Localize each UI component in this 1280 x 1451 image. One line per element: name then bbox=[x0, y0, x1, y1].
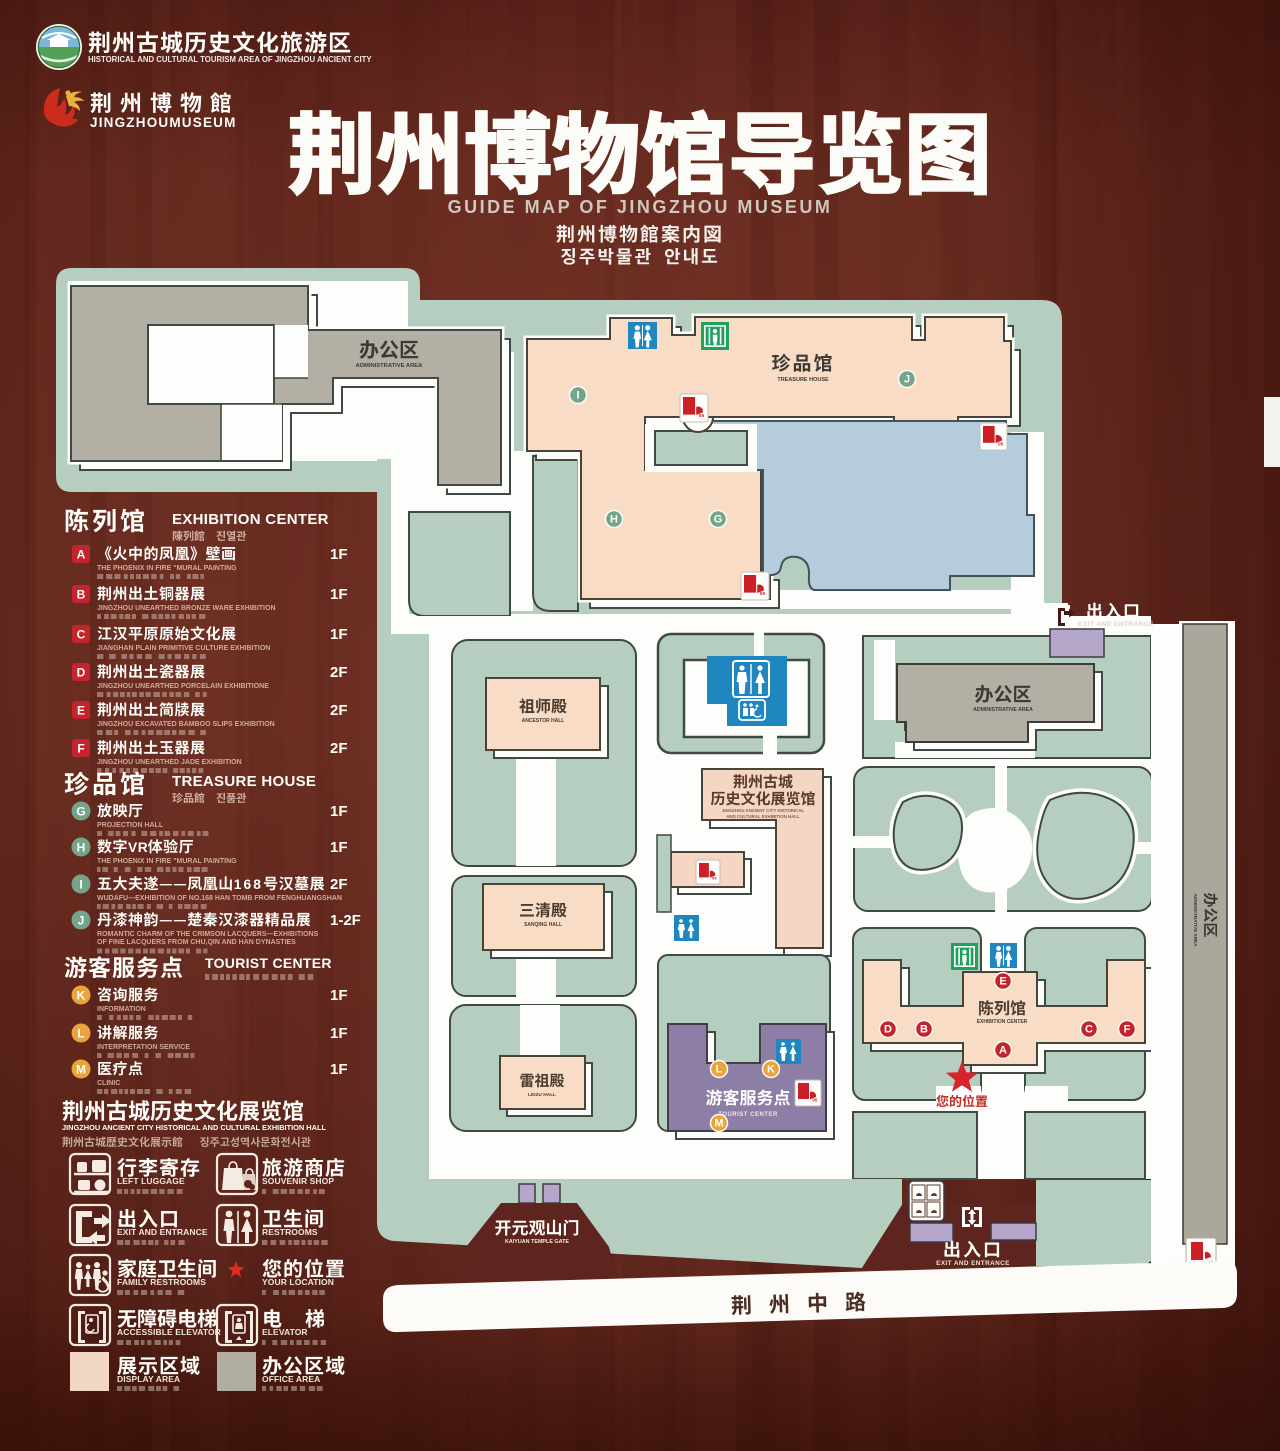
svg-text:C: C bbox=[77, 628, 86, 642]
svg-text:INFORMATION: INFORMATION bbox=[97, 1006, 146, 1013]
svg-text:TREASURE HOUSE: TREASURE HOUSE bbox=[172, 773, 316, 790]
svg-text:05: 05 bbox=[712, 876, 717, 881]
svg-text:EXIT AND ENTRANCE: EXIT AND ENTRANCE bbox=[1078, 621, 1154, 628]
svg-text:THE PHOENIX IN FIRE "MURAL PAI: THE PHOENIX IN FIRE "MURAL PAINTING bbox=[97, 565, 237, 572]
svg-text:1F: 1F bbox=[330, 1025, 348, 1042]
svg-text:JINGZHOU UNEARTHED BRONZE WARE: JINGZHOU UNEARTHED BRONZE WARE EXHIBITIO… bbox=[97, 605, 276, 612]
svg-text:YOUR LOCATION: YOUR LOCATION bbox=[262, 1277, 334, 1287]
svg-text:DISPLAY AREA: DISPLAY AREA bbox=[117, 1374, 180, 1384]
svg-text:JINGZHOU UNEARTHED PORCELAIN E: JINGZHOU UNEARTHED PORCELAIN EXHIBITIONE bbox=[97, 683, 269, 690]
svg-text:1F: 1F bbox=[330, 839, 348, 856]
svg-text:2F: 2F bbox=[330, 664, 348, 681]
svg-text:PROJECTION HALL: PROJECTION HALL bbox=[97, 822, 164, 829]
svg-text:F: F bbox=[77, 742, 84, 756]
svg-text:B: B bbox=[77, 588, 86, 602]
svg-text:1F: 1F bbox=[330, 546, 348, 563]
svg-text:M: M bbox=[714, 1118, 723, 1130]
svg-text:OF FINE LACQUERS FROM CHU,QIN: OF FINE LACQUERS FROM CHU,QIN AND HAN DY… bbox=[97, 939, 296, 946]
svg-text:AND CULTURAL EXHIBITION HALL: AND CULTURAL EXHIBITION HALL bbox=[726, 814, 800, 819]
svg-text:I: I bbox=[576, 390, 579, 402]
svg-text:1F: 1F bbox=[330, 586, 348, 603]
svg-text:EXHIBITION CENTER: EXHIBITION CENTER bbox=[172, 511, 329, 528]
svg-text:1F: 1F bbox=[330, 803, 348, 820]
svg-text:FAMILY RESTROOMS: FAMILY RESTROOMS bbox=[117, 1277, 206, 1287]
svg-text:H: H bbox=[77, 841, 86, 855]
svg-text:ADMINISTRATIVE AREA: ADMINISTRATIVE AREA bbox=[356, 363, 423, 369]
svg-text:INTERPRETATION SERVICE: INTERPRETATION SERVICE bbox=[97, 1044, 190, 1051]
svg-text:2F: 2F bbox=[330, 740, 348, 757]
svg-text:ANCESTOR HALL: ANCESTOR HALL bbox=[522, 718, 565, 724]
svg-text:D: D bbox=[884, 1024, 892, 1036]
svg-text:I: I bbox=[79, 878, 82, 892]
svg-text:A: A bbox=[999, 1045, 1007, 1057]
svg-text:1F: 1F bbox=[330, 987, 348, 1004]
svg-text:1-2F: 1-2F bbox=[330, 912, 361, 929]
svg-text:OFFICE AREA: OFFICE AREA bbox=[262, 1374, 320, 1384]
svg-text:J: J bbox=[78, 914, 85, 928]
svg-text:C: C bbox=[1085, 1024, 1093, 1036]
svg-text:JINGZHOUMUSEUM: JINGZHOUMUSEUM bbox=[90, 115, 237, 130]
svg-text:JINGZHOU ANCIENT CITY HISTORIC: JINGZHOU ANCIENT CITY HISTORICAL bbox=[722, 808, 805, 813]
svg-text:L: L bbox=[716, 1064, 723, 1076]
svg-text:05: 05 bbox=[812, 1097, 817, 1102]
svg-text:8: 8 bbox=[253, 877, 261, 892]
svg-text:ADMINISTRATIVE AREA: ADMINISTRATIVE AREA bbox=[1193, 894, 1198, 948]
svg-text:EXIT AND ENTRANCE: EXIT AND ENTRANCE bbox=[936, 1260, 1010, 1267]
svg-text:B: B bbox=[920, 1024, 928, 1036]
svg-text:CLINIC: CLINIC bbox=[97, 1080, 120, 1087]
svg-text:G: G bbox=[76, 805, 85, 819]
svg-text:EXHIBITION CENTER: EXHIBITION CENTER bbox=[977, 1019, 1028, 1025]
svg-text:G: G bbox=[714, 514, 723, 526]
svg-text:EXIT AND ENTRANCE: EXIT AND ENTRANCE bbox=[117, 1227, 208, 1237]
svg-text:WUDAFU—EXHIBITION OF NO.168 HA: WUDAFU—EXHIBITION OF NO.168 HAN TOMB FRO… bbox=[97, 895, 342, 902]
svg-text:D: D bbox=[77, 666, 86, 680]
svg-text:1F: 1F bbox=[330, 1061, 348, 1078]
svg-text:05: 05 bbox=[998, 441, 1004, 446]
svg-text:ADMINISTRATIVE AREA: ADMINISTRATIVE AREA bbox=[973, 707, 1033, 713]
svg-text:LEFT LUGGAGE: LEFT LUGGAGE bbox=[117, 1176, 185, 1186]
svg-text:1F: 1F bbox=[330, 626, 348, 643]
svg-text:SOUVENIR SHOP: SOUVENIR SHOP bbox=[262, 1176, 334, 1186]
svg-text:JIANGHAN PLAIN PRIMITIVE CULTU: JIANGHAN PLAIN PRIMITIVE CULTURE EXHIBIT… bbox=[97, 645, 270, 652]
svg-text:R: R bbox=[138, 840, 148, 855]
svg-text:E: E bbox=[999, 976, 1006, 988]
svg-text:TOURIST CENTER: TOURIST CENTER bbox=[718, 1112, 778, 1118]
svg-text:THE PHOENIX IN FIRE "MURAL PAI: THE PHOENIX IN FIRE "MURAL PAINTING bbox=[97, 858, 237, 865]
svg-text:05: 05 bbox=[760, 591, 766, 597]
svg-text:GUIDE MAP OF JINGZHOU MUSEUM: GUIDE MAP OF JINGZHOU MUSEUM bbox=[448, 197, 833, 217]
svg-text:TOURIST CENTER: TOURIST CENTER bbox=[205, 955, 332, 971]
svg-text:H: H bbox=[610, 514, 618, 526]
svg-text:6: 6 bbox=[244, 877, 252, 892]
svg-text:ACCESSIBLE ELEVATOR: ACCESSIBLE ELEVATOR bbox=[117, 1327, 221, 1337]
svg-text:05: 05 bbox=[699, 413, 705, 419]
svg-text:1: 1 bbox=[234, 877, 242, 892]
svg-text:K: K bbox=[767, 1064, 775, 1076]
svg-text:2F: 2F bbox=[330, 702, 348, 719]
svg-text:L: L bbox=[77, 1027, 84, 1041]
svg-text:ELEVATOR: ELEVATOR bbox=[262, 1327, 308, 1337]
svg-text:F: F bbox=[1124, 1024, 1131, 1036]
svg-text:A: A bbox=[77, 548, 86, 562]
svg-text:HISTORICAL AND CULTURAL TOURIS: HISTORICAL AND CULTURAL TOURISM AREA OF … bbox=[88, 55, 372, 64]
svg-text:LEIZU HALL: LEIZU HALL bbox=[528, 1092, 556, 1098]
svg-text:RESTROOMS: RESTROOMS bbox=[262, 1227, 318, 1237]
svg-text:V: V bbox=[128, 840, 138, 855]
svg-text:JINGZHOU ANCIENT CITY HISTORIC: JINGZHOU ANCIENT CITY HISTORICAL AND CUL… bbox=[62, 1123, 326, 1132]
svg-text:2F: 2F bbox=[330, 876, 348, 893]
svg-text:JINGZHOU UNEARTHED JADE EXHIBI: JINGZHOU UNEARTHED JADE EXHIBITION bbox=[97, 759, 242, 766]
svg-text:E: E bbox=[77, 704, 85, 718]
svg-text:KAIYUAN TEMPLE GATE: KAIYUAN TEMPLE GATE bbox=[505, 1239, 569, 1245]
svg-text:SANQING HALL: SANQING HALL bbox=[524, 922, 562, 928]
svg-text:ROMANTIC CHARM OF THE CRIMSON: ROMANTIC CHARM OF THE CRIMSON LACQUERS—E… bbox=[97, 931, 319, 938]
svg-text:K: K bbox=[77, 989, 86, 1003]
svg-text:JINGZHOU EXCAVATED BAMBOO SLIP: JINGZHOU EXCAVATED BAMBOO SLIPS EXHIBITI… bbox=[97, 721, 275, 728]
svg-text:TREASURE HOUSE: TREASURE HOUSE bbox=[777, 377, 829, 383]
svg-text:M: M bbox=[76, 1063, 86, 1077]
svg-text:J: J bbox=[904, 374, 910, 386]
